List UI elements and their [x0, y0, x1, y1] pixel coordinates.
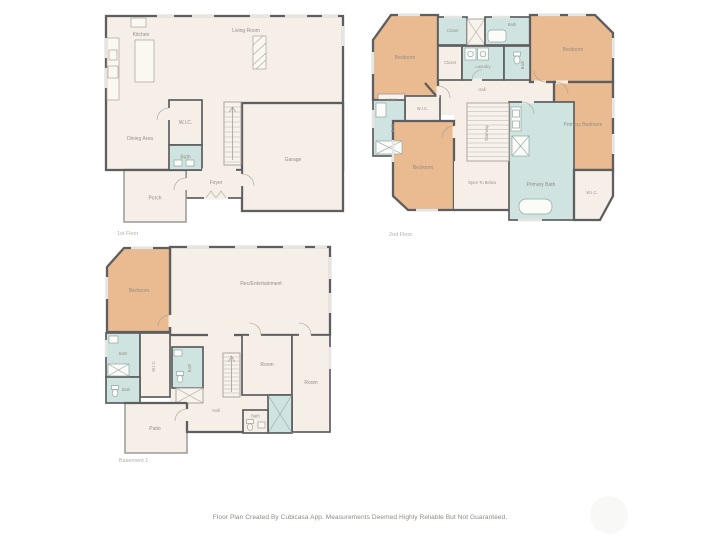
toilet-tank: [177, 372, 184, 376]
second-floor-plan: Bedroom Closet Bath Bedroom Closet Laund…: [372, 10, 618, 228]
toilet-tank: [514, 52, 521, 56]
room-rec-entertainment: [170, 247, 330, 335]
room-label: Bath: [520, 60, 525, 69]
room-label: Bedroom: [395, 55, 415, 61]
room-label: Laundry: [475, 64, 491, 69]
floor-plan-page: Kitchen Living Room Dining Area W.I.C. B…: [0, 0, 720, 540]
room-label: Garage: [285, 157, 302, 163]
room-label: W.I.C.: [151, 360, 156, 371]
room-label: Stairway: [484, 124, 489, 141]
room-label: Dining Area: [127, 136, 153, 142]
sink: [174, 350, 182, 356]
room-label: Bedroom: [413, 165, 433, 171]
room-label: Bath: [187, 363, 192, 372]
stove: [108, 66, 118, 78]
toilet: [247, 424, 252, 431]
open-to-below-area: [454, 161, 509, 210]
counter-top: [131, 18, 146, 27]
vanity: [376, 103, 386, 117]
stairs: [223, 353, 240, 397]
room-label: Bath: [390, 123, 395, 132]
room-label: Open To Below: [468, 180, 497, 185]
kitchen-island: [135, 40, 154, 82]
room-label: Primary Bedroom: [564, 122, 603, 128]
floor-title-1st: 1st Floor: [117, 231, 138, 237]
sink: [174, 160, 182, 166]
room-label: Primary Bath: [527, 182, 556, 188]
floor-title-2nd: 2nd Floor: [389, 232, 412, 238]
sink: [186, 160, 194, 166]
room-label: Rec/Entertainment: [240, 281, 282, 287]
room-label: Porch: [148, 196, 161, 202]
room-label: Patio: [149, 426, 161, 432]
sink: [109, 336, 118, 343]
room-label: Linen: [386, 97, 397, 102]
room-label: Bedroom: [129, 288, 149, 294]
floor-title-basement: Basement 1: [119, 458, 148, 464]
basement-floor-plan: Bedroom Rec/Entertainment Bath W.I.C. Ba…: [103, 245, 335, 467]
sink: [513, 121, 520, 128]
room-label: W.I.C.: [417, 106, 428, 111]
sink: [513, 110, 520, 117]
toilet: [112, 389, 118, 396]
room-label: Hall: [478, 87, 485, 92]
bathtub: [488, 30, 506, 42]
bathtub: [519, 199, 552, 214]
room-label: Bedroom: [563, 47, 583, 53]
room-label: Bath: [508, 22, 517, 27]
room-label: Room: [304, 380, 317, 386]
room-label: Hall: [212, 408, 219, 413]
toilet-tank: [112, 386, 119, 390]
toilet-tank: [247, 420, 254, 424]
room-label: Bath: [119, 351, 128, 356]
washer-drum: [468, 51, 474, 57]
dryer-drum: [480, 51, 486, 57]
first-floor-plan: Kitchen Living Room Dining Area W.I.C. B…: [104, 12, 346, 234]
room-label: Room: [260, 362, 273, 368]
room-label: Living Room: [232, 28, 260, 34]
room-label: Bath: [180, 155, 191, 161]
watermark-logo: [590, 496, 628, 534]
room-wic-br: [574, 170, 613, 220]
fireplace: [253, 36, 266, 69]
room-label: Closet: [447, 28, 460, 33]
room-label: W.I.C.: [586, 190, 597, 195]
room-label: Bath: [122, 387, 131, 392]
sink: [258, 422, 265, 428]
room-label: Closet: [444, 60, 457, 65]
kitchen-sink: [109, 50, 117, 60]
room-label: Foyer: [210, 180, 223, 186]
room-label: Bath: [251, 414, 260, 419]
toilet: [177, 375, 183, 382]
stairs: [224, 102, 241, 165]
room-label: W.I.C.: [179, 120, 193, 126]
room-label: Kitchen: [133, 32, 150, 38]
